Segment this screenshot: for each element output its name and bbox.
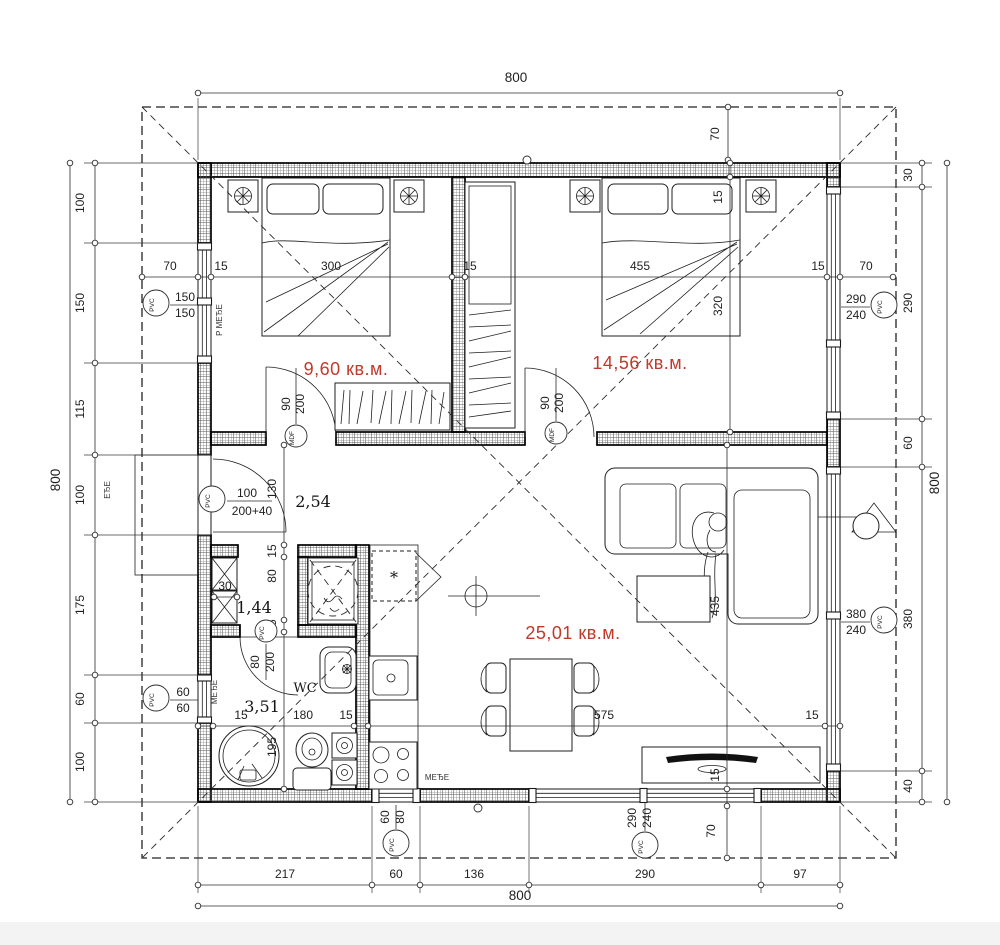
- pillow: [608, 184, 668, 214]
- dining-table: [510, 659, 572, 751]
- dim-right-3: 380: [901, 609, 915, 629]
- dim-overall-right: 800: [927, 472, 942, 495]
- wardrobe-bedroom1: [335, 383, 450, 430]
- dim-bottom-3: 290: [635, 867, 655, 881]
- dim-bottom-4: 97: [793, 867, 807, 881]
- sill-outside-left: ЕЂЕ: [103, 481, 112, 499]
- dim-bath-2: 80: [265, 569, 279, 583]
- svg-text:90: 90: [538, 396, 552, 410]
- svg-text:PVC: PVC: [389, 838, 396, 852]
- dim-left-4: 175: [73, 595, 87, 615]
- closet-area-label: 1,44: [236, 598, 272, 617]
- bathroom-area-label: 3,51: [244, 697, 280, 716]
- chair: [486, 663, 506, 693]
- svg-text:200: 200: [552, 393, 566, 413]
- wardrobe-bedroom2: [465, 182, 515, 428]
- svg-text:PVC: PVC: [877, 615, 884, 629]
- dim-bath-0: 130: [265, 479, 279, 499]
- wc-label: WC: [293, 681, 316, 696]
- dim-living-col-1: 15: [708, 768, 722, 782]
- pillow: [267, 184, 319, 214]
- stove-icon: [369, 742, 417, 789]
- dim-left-3: 100: [73, 485, 87, 505]
- dim-living-row-4: 15: [805, 708, 819, 722]
- svg-text:PVC: PVC: [205, 494, 212, 508]
- svg-text:240: 240: [846, 623, 866, 637]
- lamp-icon: [753, 188, 770, 205]
- svg-text:60: 60: [176, 685, 190, 699]
- dim-bath-1: 15: [265, 544, 279, 558]
- dim-left-5: 60: [73, 692, 87, 706]
- tv-cabinet: [642, 747, 820, 783]
- dim-bath-4: 195: [265, 737, 279, 757]
- living-area-label: 25,01 кв.м.: [525, 623, 620, 643]
- svg-text:PVC: PVC: [149, 298, 156, 312]
- svg-text:MDF: MDF: [549, 428, 556, 442]
- svg-text:90: 90: [279, 397, 293, 411]
- dim-overall-bottom: 800: [509, 888, 532, 903]
- dim-row-upper-1: 15: [214, 259, 228, 273]
- dim-right-1: 290: [901, 293, 915, 313]
- dim-bottom-0: 217: [275, 867, 295, 881]
- coffee-table: [637, 576, 710, 622]
- dim-offset-bottom: 70: [704, 824, 718, 838]
- svg-text:MDF: MDF: [289, 431, 296, 445]
- dim-row-upper-0: 70: [163, 259, 177, 273]
- dim-left-1: 150: [73, 293, 87, 313]
- dim-living-col-0: 435: [708, 596, 722, 616]
- shower-icon: [308, 558, 358, 624]
- chair: [574, 706, 594, 736]
- floor-plan-drawing: *: [0, 0, 1000, 945]
- lamp-icon: [401, 188, 418, 205]
- svg-text:240: 240: [846, 308, 866, 322]
- dim-right-4: 40: [901, 779, 915, 793]
- dim-right-0: 30: [901, 168, 915, 182]
- dim-row-upper-6: 70: [859, 259, 873, 273]
- svg-text:60: 60: [176, 701, 190, 715]
- bathroom-sink-icon: [320, 647, 356, 693]
- svg-text:PVC: PVC: [638, 840, 645, 854]
- svg-text:290: 290: [625, 808, 639, 828]
- svg-text:100: 100: [237, 486, 257, 500]
- dim-bottom-2: 136: [464, 867, 484, 881]
- dim-overall-left: 800: [48, 469, 63, 492]
- bottom-margin-band: [0, 922, 1000, 945]
- svg-text:290: 290: [846, 292, 866, 306]
- svg-text:150: 150: [175, 290, 195, 304]
- dim-bed2-1: 320: [711, 296, 725, 316]
- svg-text:80: 80: [248, 655, 262, 669]
- window-left-top-icon: [198, 243, 212, 363]
- floor-plan-canvas: *: [0, 0, 1000, 945]
- svg-text:PVC: PVC: [877, 300, 884, 314]
- dim-left-6: 100: [73, 752, 87, 772]
- svg-text:PVC: PVC: [259, 626, 266, 640]
- svg-text:240: 240: [640, 808, 654, 828]
- chair: [486, 706, 506, 736]
- dim-offset-top: 70: [708, 127, 722, 141]
- dim-row-upper-3: 15: [463, 259, 477, 273]
- dim-living-row-3: 575: [594, 708, 614, 722]
- window-right-top-icon: [827, 187, 841, 419]
- sill-left-bottom: МЕЂЕ: [210, 680, 219, 704]
- svg-text:PVC: PVC: [149, 693, 156, 707]
- dim-left-2: 115: [73, 399, 87, 418]
- dim-living-row-1: 180: [293, 708, 313, 722]
- window-bottom-left-icon: [372, 789, 420, 803]
- sill-left-top: P МЕЂЕ: [215, 304, 224, 336]
- sill-kitchen: МЕЂЕ: [425, 773, 449, 782]
- hall-area-label: 2,54: [295, 492, 331, 511]
- chair: [574, 663, 594, 693]
- dim-right-2: 60: [901, 436, 915, 450]
- fridge-mark: *: [390, 568, 398, 587]
- dim-left-0: 100: [73, 193, 87, 213]
- bedroom2-area-label: 14,56 кв.м.: [592, 353, 687, 373]
- pillow: [323, 184, 383, 214]
- svg-text:150: 150: [175, 306, 195, 320]
- dim-overall-top: 800: [505, 70, 528, 85]
- svg-text:200: 200: [293, 394, 307, 414]
- dim-bottom-1: 60: [389, 867, 403, 881]
- lamp-icon: [577, 188, 594, 205]
- svg-text:80: 80: [393, 810, 407, 824]
- dim-closet: 30: [218, 579, 232, 593]
- svg-text:200: 200: [263, 652, 277, 672]
- page-background: [0, 0, 1000, 945]
- svg-text:60: 60: [378, 810, 392, 824]
- dim-row-upper-5: 15: [811, 259, 825, 273]
- tv-unit: [642, 747, 820, 783]
- bedroom1-area-label: 9,60 кв.м.: [304, 359, 389, 379]
- dim-row-upper-2: 300: [321, 259, 341, 273]
- svg-text:200+40: 200+40: [232, 504, 273, 518]
- kitchen-sink-icon: [369, 656, 417, 700]
- svg-text:380: 380: [846, 607, 866, 621]
- dim-row-upper-4: 455: [630, 259, 650, 273]
- dim-bed2-0: 15: [711, 190, 725, 204]
- dim-living-row-2: 15: [339, 708, 353, 722]
